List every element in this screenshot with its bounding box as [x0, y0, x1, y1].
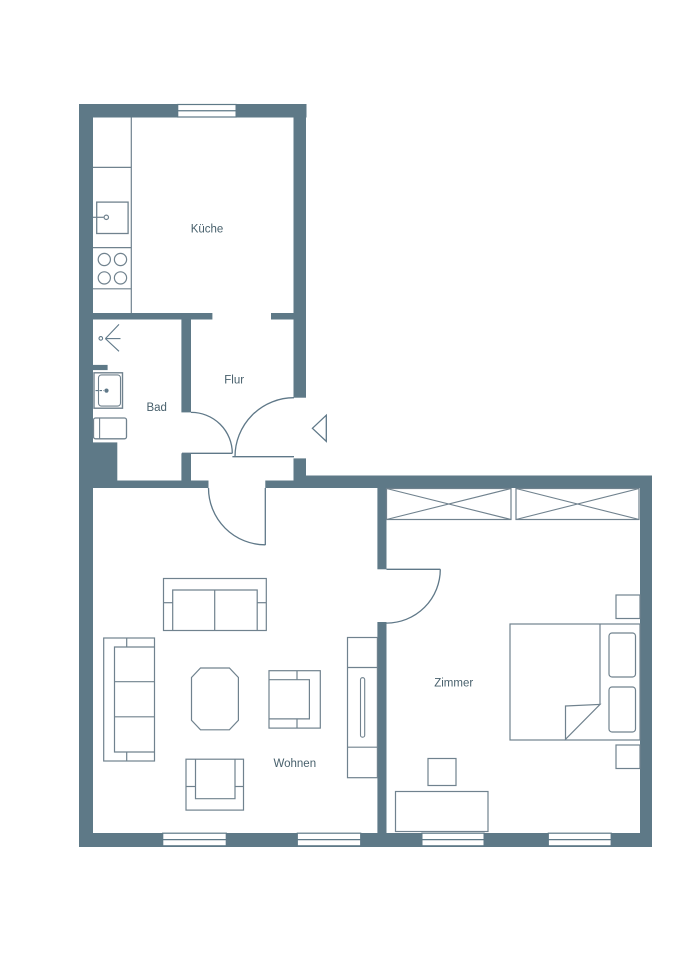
- svg-text:Zimmer: Zimmer: [434, 678, 473, 690]
- svg-text:Flur: Flur: [224, 375, 244, 387]
- svg-text:Bad: Bad: [146, 402, 166, 414]
- svg-text:Küche: Küche: [191, 223, 224, 235]
- svg-text:Wohnen: Wohnen: [273, 758, 316, 770]
